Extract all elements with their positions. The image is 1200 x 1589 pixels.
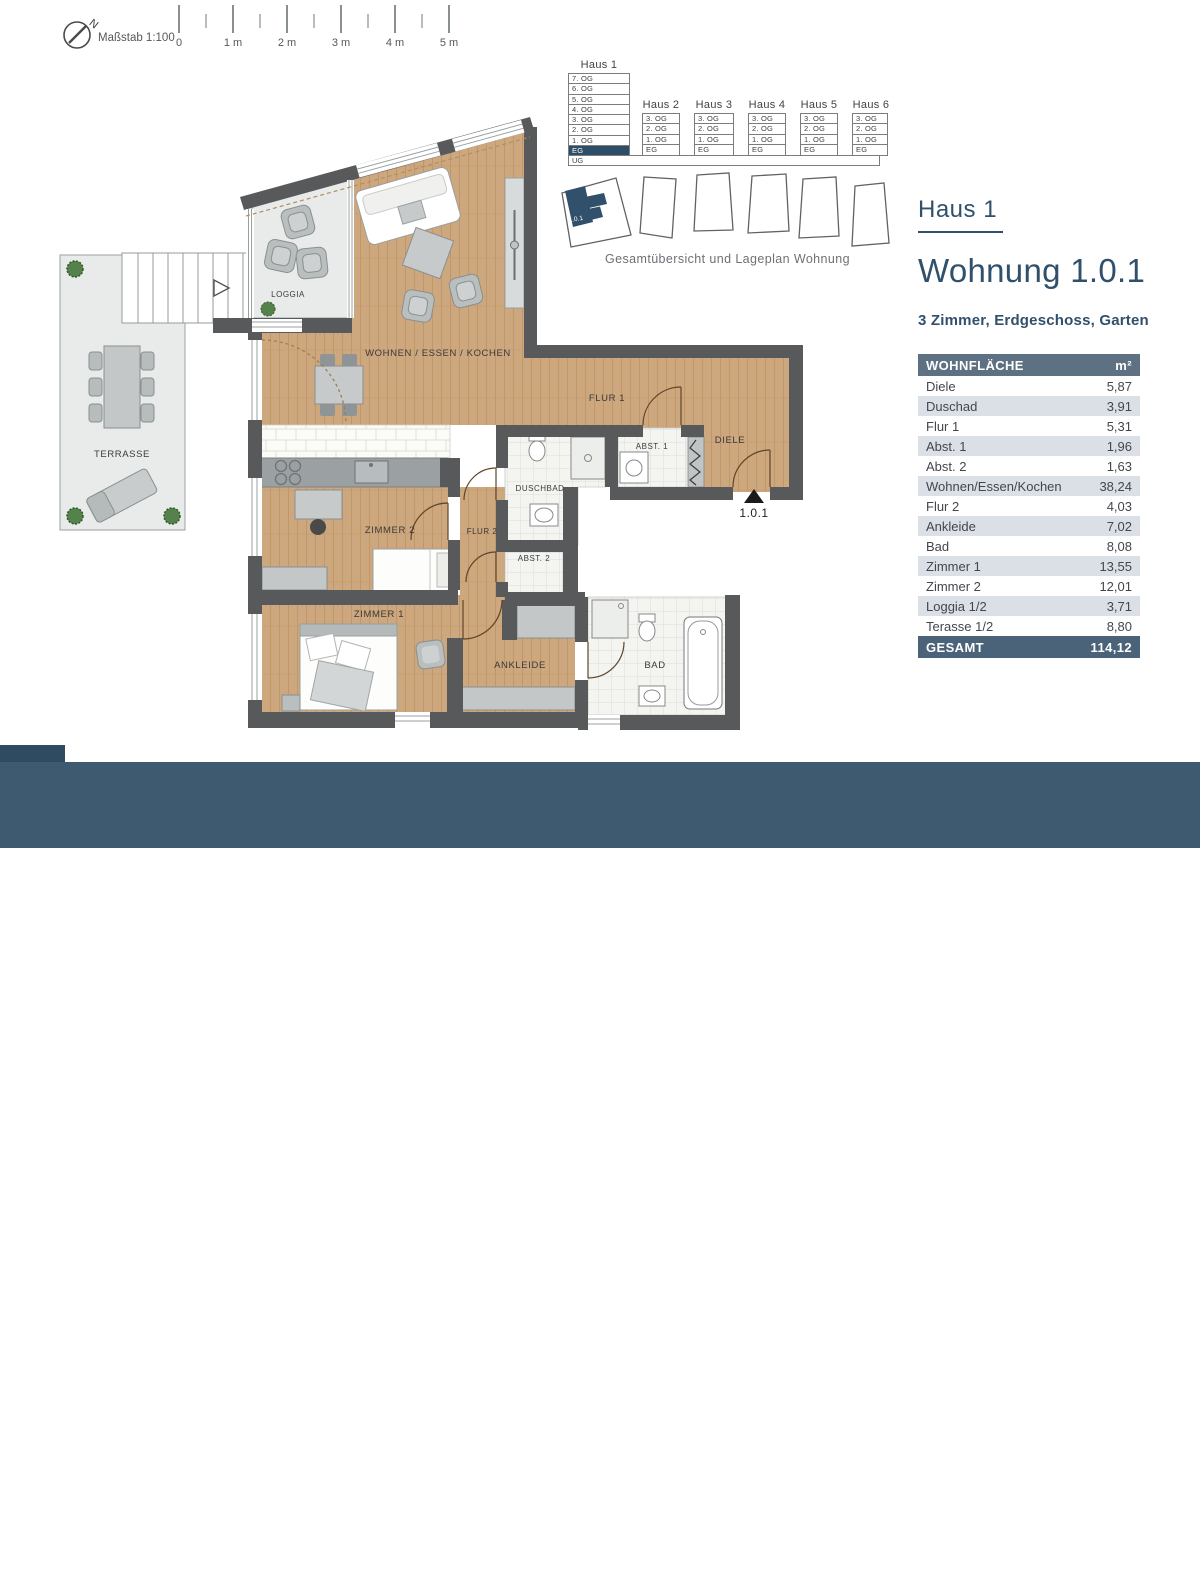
unit-subtitle: 3 Zimmer, Erdgeschoss, Garten: [918, 312, 1149, 329]
footer-bar: Artem – STADTQUARTIER OBERURSEL WILMA: [0, 762, 1200, 848]
floor-cell: EG: [749, 145, 785, 155]
double-bed: [300, 624, 397, 711]
table-row: Loggia 1/23,71: [918, 596, 1140, 616]
floor-cell: 2. OG: [853, 124, 887, 134]
floor-cell: 2. OG: [801, 124, 837, 134]
table-row: Abst. 21,63: [918, 456, 1140, 476]
brand-rest: em: [113, 1550, 158, 1583]
terrace: TERRASSE: [60, 253, 257, 530]
table-row: Diele5,87: [918, 376, 1140, 396]
desk-chair: [310, 519, 326, 535]
toilet-icon: [529, 441, 545, 461]
floor-cell: 3. OG: [749, 114, 785, 124]
scale-caption: Maßstab 1:100: [98, 32, 175, 44]
table-total-row: GESAMT 114,12: [918, 636, 1140, 658]
bush-icon: [67, 261, 83, 277]
footprint-haus-2: [640, 177, 676, 238]
toilet-icon: [639, 621, 655, 641]
bathtub-icon: [684, 617, 722, 709]
footprint-haus-5: [799, 177, 839, 238]
footprint-haus-3: [694, 173, 733, 231]
total-label: GESAMT: [926, 640, 984, 655]
table-row: Terasse 1/28,80: [918, 616, 1140, 636]
table-row: Wohnen/Essen/Kochen38,24: [918, 476, 1140, 496]
room-label-zimmer2: ZIMMER 2: [365, 525, 415, 536]
table-row: Ankleide7,02: [918, 516, 1140, 536]
room-label-zimmer1: ZIMMER 1: [354, 609, 404, 620]
room-label-duschbad: DUSCHBAD: [516, 484, 565, 493]
nightstand: [282, 695, 300, 711]
floor-cell: 1. OG: [853, 135, 887, 145]
room-label-wohnen: WOHNEN / ESSEN / KOCHEN: [365, 348, 511, 359]
area-header-unit: m²: [1115, 358, 1132, 373]
scale-bar: Maßstab 1:100 0 1 m 2 m 3 m 4 m 5 m: [98, 5, 458, 49]
floor-cell: 3. OG: [853, 114, 887, 124]
sink-icon: [530, 504, 558, 526]
table-row: Duschad3,91: [918, 396, 1140, 416]
haus2-floor-table: 3. OG 2. OG 1. OG EG: [642, 113, 680, 156]
room-label-ankleide: ANKLEIDE: [494, 660, 546, 671]
floor-cell: 2. OG: [749, 124, 785, 134]
sink-icon: [639, 686, 665, 706]
overview-caption: Gesamtübersicht und Lageplan Wohnung: [565, 252, 890, 266]
house-title: Haus 1: [918, 196, 1003, 233]
site-overview-footprints: 1.0.1: [562, 173, 889, 247]
floor-cell: 1. OG: [569, 136, 629, 146]
floor-cell: 1. OG: [643, 135, 679, 145]
entrance-marker: 1.0.1: [739, 489, 768, 520]
basement-row: UG: [568, 155, 880, 166]
haus5-title: Haus 5: [793, 99, 845, 111]
bush-icon: [164, 508, 180, 524]
kitchen: [258, 425, 450, 487]
tall-cabinet: [505, 178, 524, 308]
floor-cell: 2. OG: [695, 124, 733, 134]
table-row: Flur 15,31: [918, 416, 1140, 436]
floor-cell: 4. OG: [569, 105, 629, 115]
wardrobe: [262, 567, 327, 590]
room-label-flur1: FLUR 1: [589, 393, 625, 404]
haus3-title: Haus 3: [688, 99, 740, 111]
project-name: – STADTQUARTIER OBERURSEL: [167, 1550, 673, 1583]
floor-cell: 6. OG: [569, 84, 629, 94]
haus1-title: Haus 1: [568, 59, 630, 71]
washing-machine-icon: [620, 452, 648, 483]
footprint-haus-6: [852, 183, 889, 246]
tick-1m: 1 m: [224, 37, 242, 49]
tick-0: 0: [176, 37, 182, 49]
room-label-abst2: ABST. 2: [518, 554, 550, 563]
floor-cell: EG: [643, 145, 679, 155]
tick-4m: 4 m: [386, 37, 404, 49]
table-row: Zimmer 212,01: [918, 576, 1140, 596]
total-value: 114,12: [1091, 640, 1132, 655]
dining-table: [315, 366, 363, 404]
tick-3m: 3 m: [332, 37, 350, 49]
tick-5m: 5 m: [440, 37, 458, 49]
bush-icon: [67, 508, 83, 524]
room-label-loggia: LOGGIA: [271, 290, 305, 299]
floor-cell: 1. OG: [801, 135, 837, 145]
floor-cell: 3. OG: [801, 114, 837, 124]
terrace-dining-set: [89, 346, 154, 428]
haus6-floor-table: 3. OG 2. OG 1. OG EG: [852, 113, 888, 156]
chair: [415, 639, 445, 669]
floor-cell: 2. OG: [569, 125, 629, 135]
area-table: WOHNFLÄCHE m² Diele5,87 Duschad3,91 Flur…: [918, 354, 1140, 658]
brand-bold: Art: [65, 1550, 113, 1583]
table-row: Bad8,08: [918, 536, 1140, 556]
haus2-title: Haus 2: [635, 99, 687, 111]
floor-cell: 3. OG: [695, 114, 733, 124]
haus3-floor-table: 3. OG 2. OG 1. OG EG: [694, 113, 734, 156]
haus5-floor-table: 3. OG 2. OG 1. OG EG: [800, 113, 838, 156]
haus6-title: Haus 6: [845, 99, 897, 111]
project-title: Artem – STADTQUARTIER OBERURSEL: [65, 1550, 674, 1584]
kitchen-island: [258, 425, 450, 458]
tick-2m: 2 m: [278, 37, 296, 49]
diele-floor: [704, 358, 790, 492]
wilma-logo: WILMA: [997, 1547, 1142, 1589]
room-label-flur2: FLUR 2: [467, 527, 498, 536]
floor-cell: EG: [853, 145, 887, 155]
haus4-floor-table: 3. OG 2. OG 1. OG EG: [748, 113, 786, 156]
haus4-title: Haus 4: [741, 99, 793, 111]
room-label-abst1: ABST. 1: [636, 442, 668, 451]
area-table-header: WOHNFLÄCHE m²: [918, 354, 1140, 376]
entrance-unit-label: 1.0.1: [739, 506, 768, 520]
shower-icon: [571, 437, 605, 479]
wardrobe: [462, 687, 575, 710]
table-row: Flur 24,03: [918, 496, 1140, 516]
coat-rack: [688, 437, 704, 487]
floor-cell: 7. OG: [569, 74, 629, 84]
room-label-diele: DIELE: [715, 435, 745, 446]
area-header-label: WOHNFLÄCHE: [926, 358, 1024, 373]
desk: [295, 490, 342, 519]
floor-cell: 3. OG: [643, 114, 679, 124]
compass-icon: N: [64, 17, 100, 48]
room-label-bad: BAD: [644, 660, 665, 671]
wardrobe: [517, 602, 575, 638]
abst1-fixtures: [620, 452, 648, 483]
kitchen-counter: [258, 458, 448, 487]
room-label-terrasse: TERRASSE: [94, 449, 150, 460]
floor-cell: EG: [801, 145, 837, 155]
floor-cell: 5. OG: [569, 95, 629, 105]
footprint-haus-4: [748, 174, 789, 233]
single-bed: [373, 549, 455, 591]
floor-plan: TERRASSE LOGGIA: [60, 117, 803, 730]
floor-cell: 2. OG: [643, 124, 679, 134]
stairs: [122, 253, 257, 323]
shower-icon: [592, 600, 628, 638]
plant-icon: [261, 302, 275, 316]
floor-cell: EG: [695, 145, 733, 155]
floor-cell: 3. OG: [569, 115, 629, 125]
haus1-floor-table: 7. OG 6. OG 5. OG 4. OG 3. OG 2. OG 1. O…: [568, 73, 630, 157]
unit-title: Wohnung 1.0.1: [918, 252, 1145, 290]
floor-cell: 1. OG: [749, 135, 785, 145]
left-wall-windows: [248, 340, 262, 700]
table-row: Abst. 11,96: [918, 436, 1140, 456]
table-row: Zimmer 113,55: [918, 556, 1140, 576]
floor-cell: 1. OG: [695, 135, 733, 145]
